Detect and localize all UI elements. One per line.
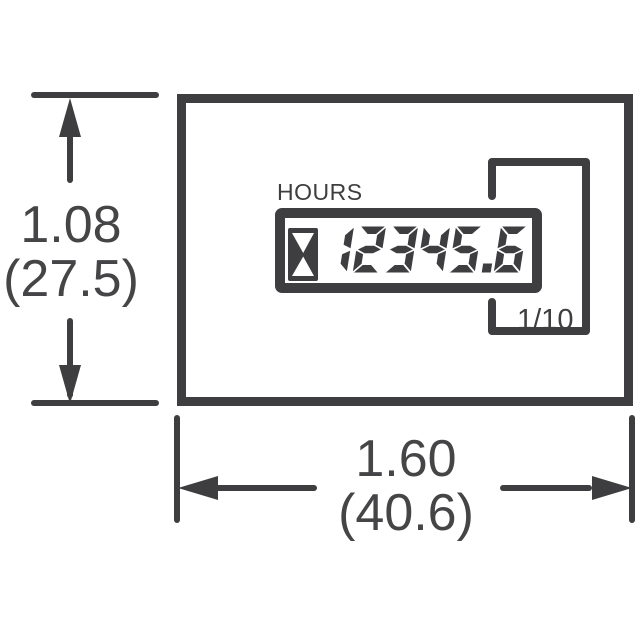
height-mm-label: (27.5) [0, 252, 146, 306]
seven-segment-readout [321, 224, 533, 276]
width-inches-label: 1.60 [306, 432, 506, 486]
width-dimension-extension-left [174, 415, 180, 523]
height-dimension-tick-bottom [31, 400, 159, 406]
height-dimension-label: 1.08 (27.5) [0, 198, 146, 306]
left-arrow-icon [175, 472, 317, 504]
hourglass-icon [288, 228, 318, 281]
lcd-display [275, 208, 542, 293]
right-arrow-icon [491, 472, 633, 504]
down-arrow-icon [59, 365, 81, 404]
height-inches-label: 1.08 [0, 198, 146, 252]
up-arrow-icon [59, 98, 81, 137]
dimension-drawing: 1.08 (27.5) HOURS 1/10 1.60 (40.6) [0, 0, 640, 640]
height-dimension-tick-top [31, 92, 159, 98]
width-dimension-label: 1.60 (40.6) [306, 432, 506, 540]
width-dimension-extension-right [629, 415, 635, 523]
width-mm-label: (40.6) [306, 486, 506, 540]
tenths-label: 1/10 [517, 305, 573, 335]
hours-label: HOURS [277, 180, 363, 204]
